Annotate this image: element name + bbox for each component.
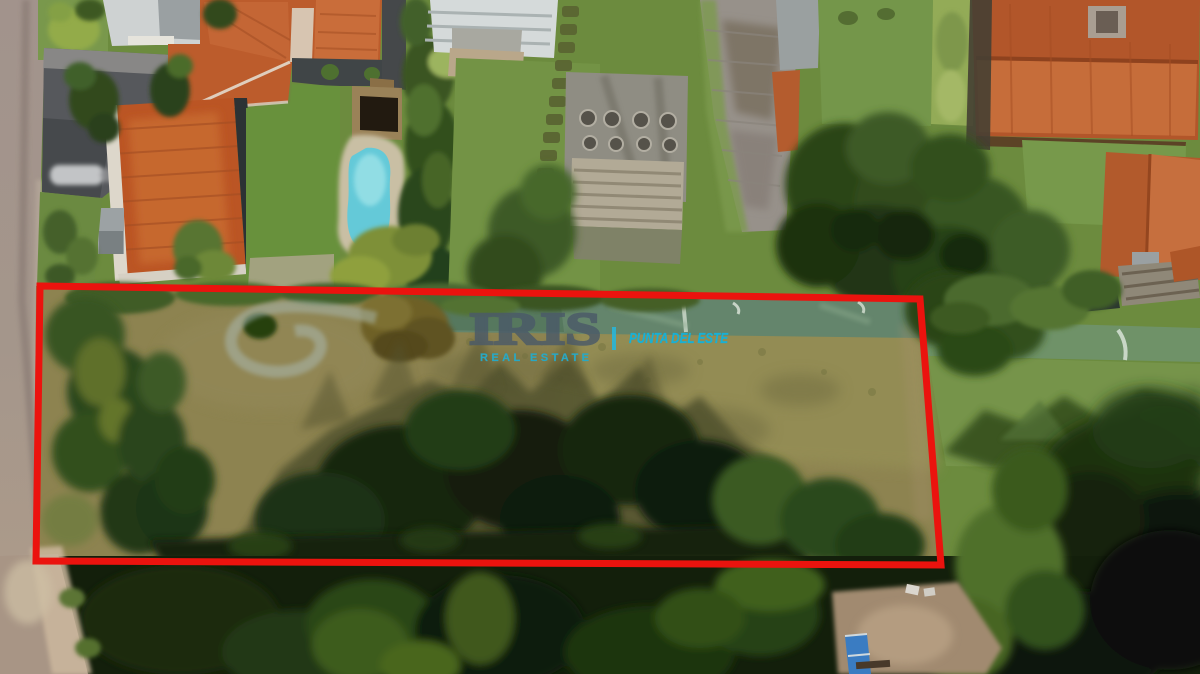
svg-text:REAL ESTATE: REAL ESTATE bbox=[480, 352, 589, 364]
svg-text:IRIS: IRIS bbox=[469, 303, 601, 354]
svg-text:PUNTA DEL ESTE: PUNTA DEL ESTE bbox=[629, 330, 729, 347]
